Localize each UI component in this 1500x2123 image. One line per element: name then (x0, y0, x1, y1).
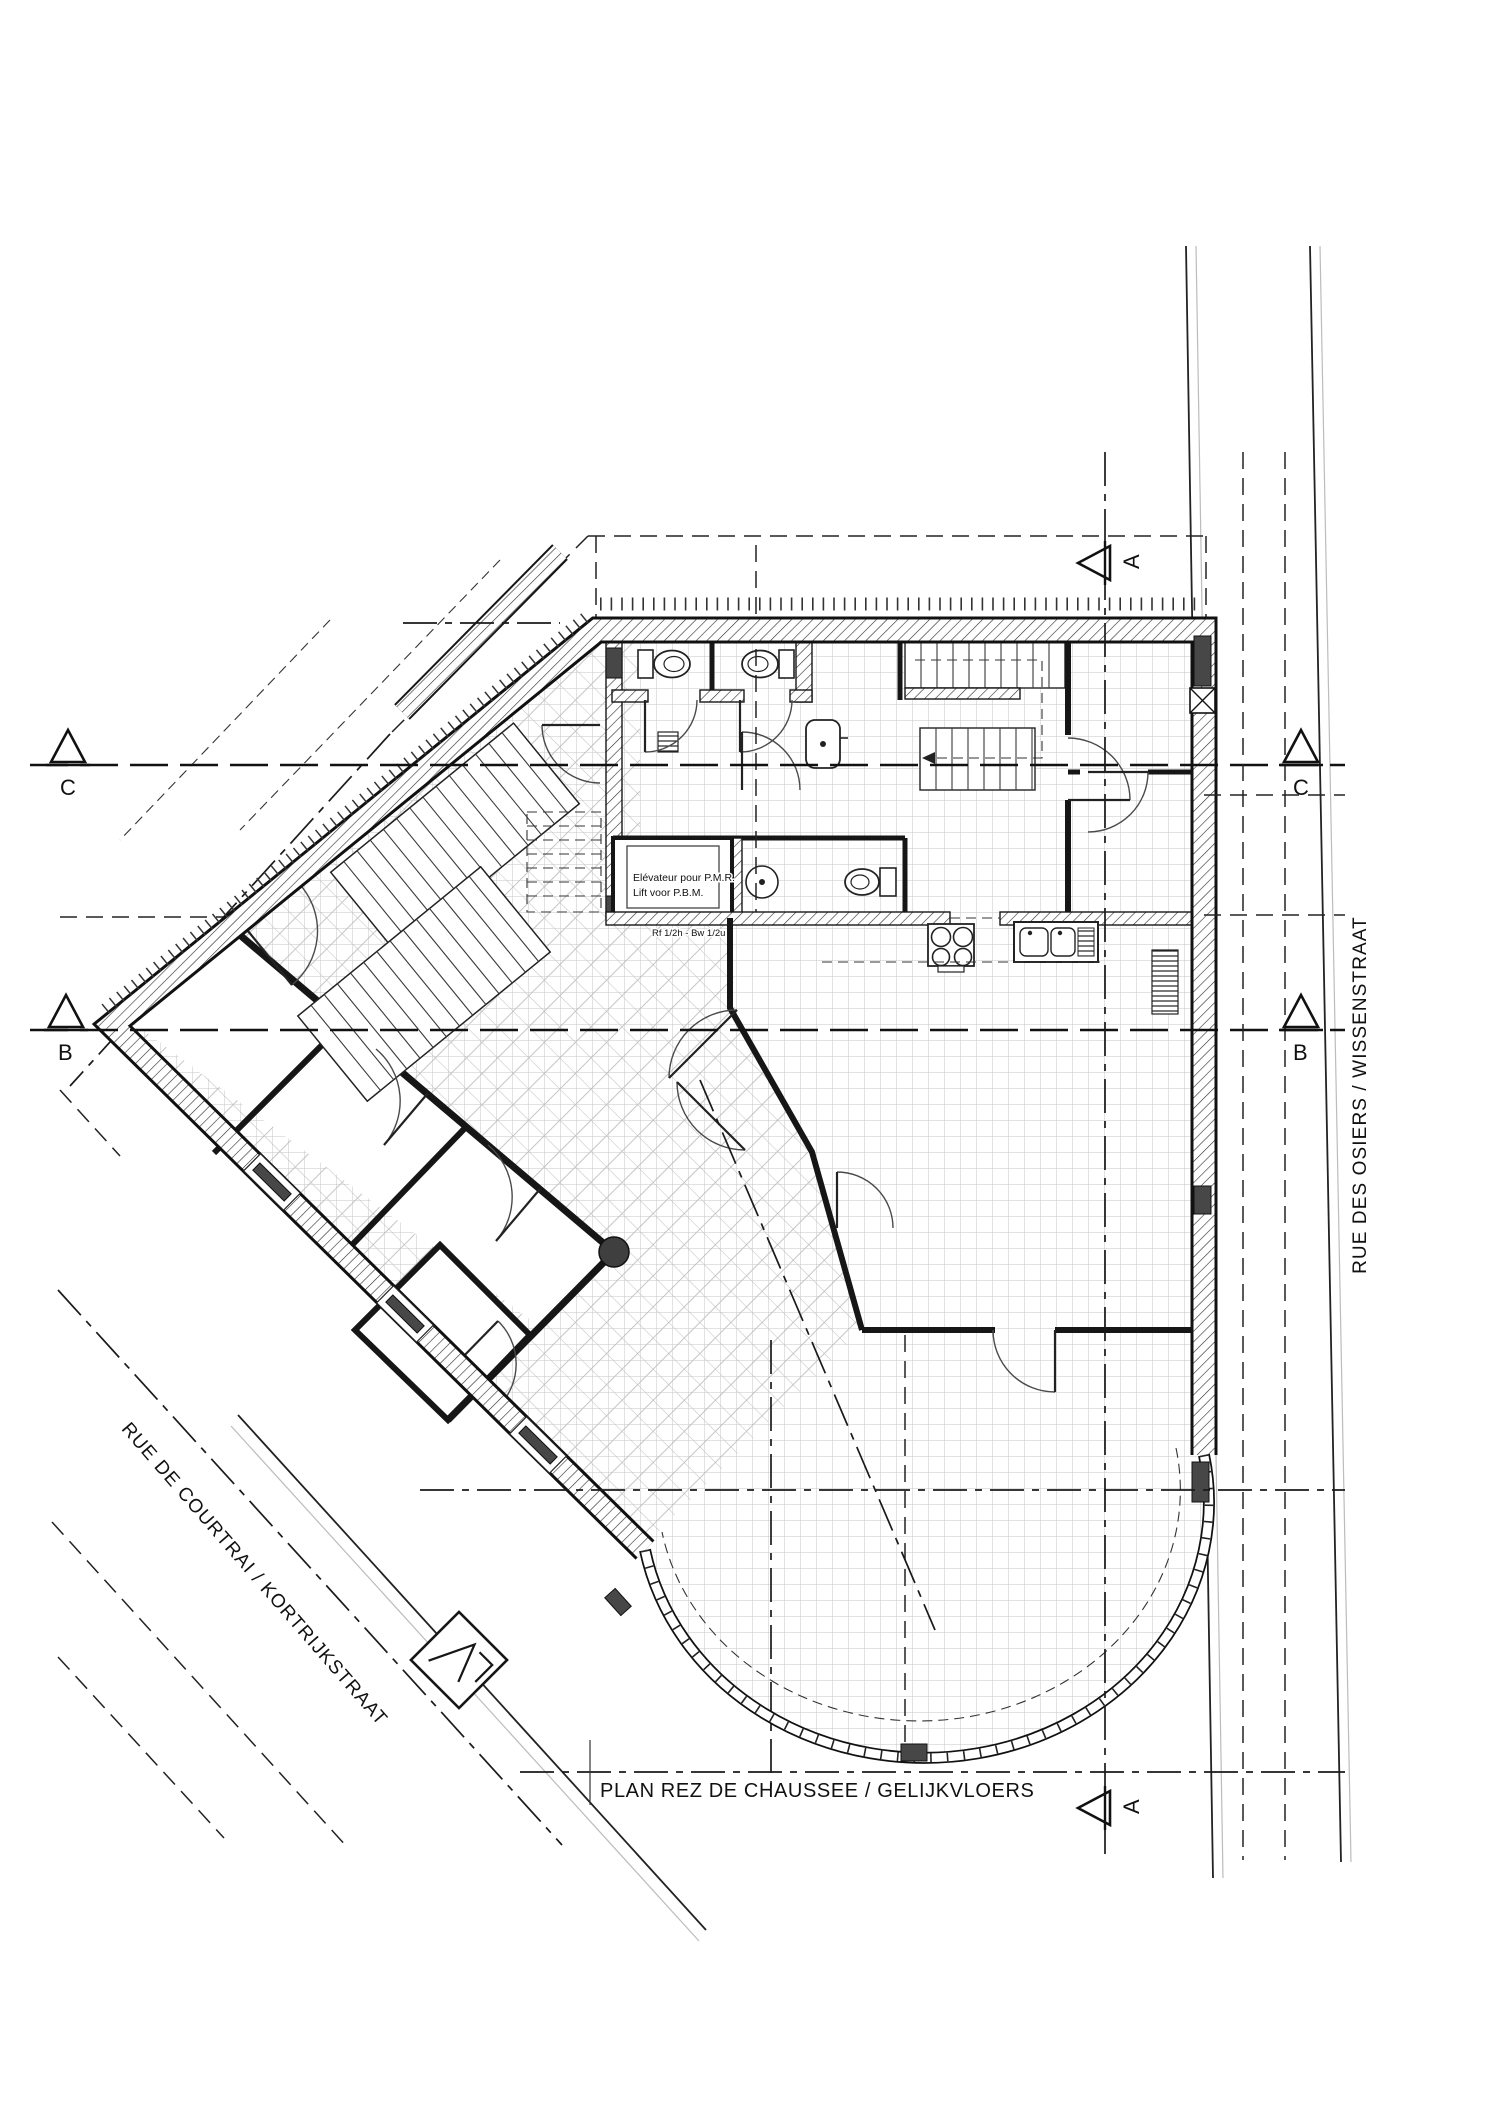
elevator-label-nl: Lift voor P.B.M. (633, 887, 703, 899)
street-label-left: RUE DE COURTRAI / KORTRIJKSTRAAT (117, 1419, 391, 1730)
elevator: Elévateur pour P.M.R. Lift voor P.B.M. (613, 838, 735, 916)
window-block-right-mid (1194, 1186, 1211, 1214)
radiator-icon (1152, 950, 1178, 1014)
elevator-label-fr: Elévateur pour P.M.R. (633, 872, 735, 884)
kitchen-sink-icon (1014, 922, 1098, 962)
street-left-dashed-1 (52, 1522, 348, 1848)
street-left-dashed-3 (60, 1090, 120, 1156)
section-letter: C (1293, 775, 1309, 800)
street-right-edge-line (1310, 246, 1341, 1862)
fire-rating-label: Rf 1/2h - Bw 1/2u (652, 928, 725, 939)
section-letter: C (60, 775, 76, 800)
mullion-block-sw (605, 1588, 631, 1615)
window-block-right-low (1192, 1462, 1209, 1502)
plan-title: PLAN REZ DE CHAUSSEE / GELIJKVLOERS (600, 1780, 1034, 1802)
toilet-icon (742, 650, 794, 678)
section-marker-a-top: A (1078, 541, 1144, 585)
section-marker-b-left: B (44, 995, 88, 1065)
section-letter: B (1293, 1040, 1308, 1065)
wall-wc-bottom-2 (700, 690, 744, 702)
section-letter: A (1119, 1799, 1144, 1814)
section-letter: A (1119, 554, 1144, 569)
wall-kitchen-hatched-left (606, 912, 950, 925)
street-label-right: RUE DES OSIERS / WISSENSTRAAT (1350, 916, 1371, 1274)
section-marker-a-bottom: A (1078, 1786, 1144, 1830)
section-marker-c-left: C (46, 730, 90, 800)
wall-wc-bottom-3 (790, 690, 812, 702)
floor-plan-page: Elévateur pour P.M.R. Lift voor P.B.M. R… (0, 0, 1500, 2123)
floor-plan-drawing: Elévateur pour P.M.R. Lift voor P.B.M. R… (0, 0, 1500, 2123)
mullion-block-bottom (901, 1744, 927, 1761)
toilet-icon (845, 868, 896, 896)
stove-icon (928, 924, 974, 972)
section-letter: B (58, 1040, 73, 1065)
lot-dash-aux-2 (120, 620, 330, 840)
column-block-wc (606, 648, 622, 678)
window-block-right-top (1194, 636, 1211, 686)
wall-wc-bottom-1 (612, 690, 648, 702)
column-round (599, 1237, 629, 1267)
toilet-icon (638, 650, 690, 678)
